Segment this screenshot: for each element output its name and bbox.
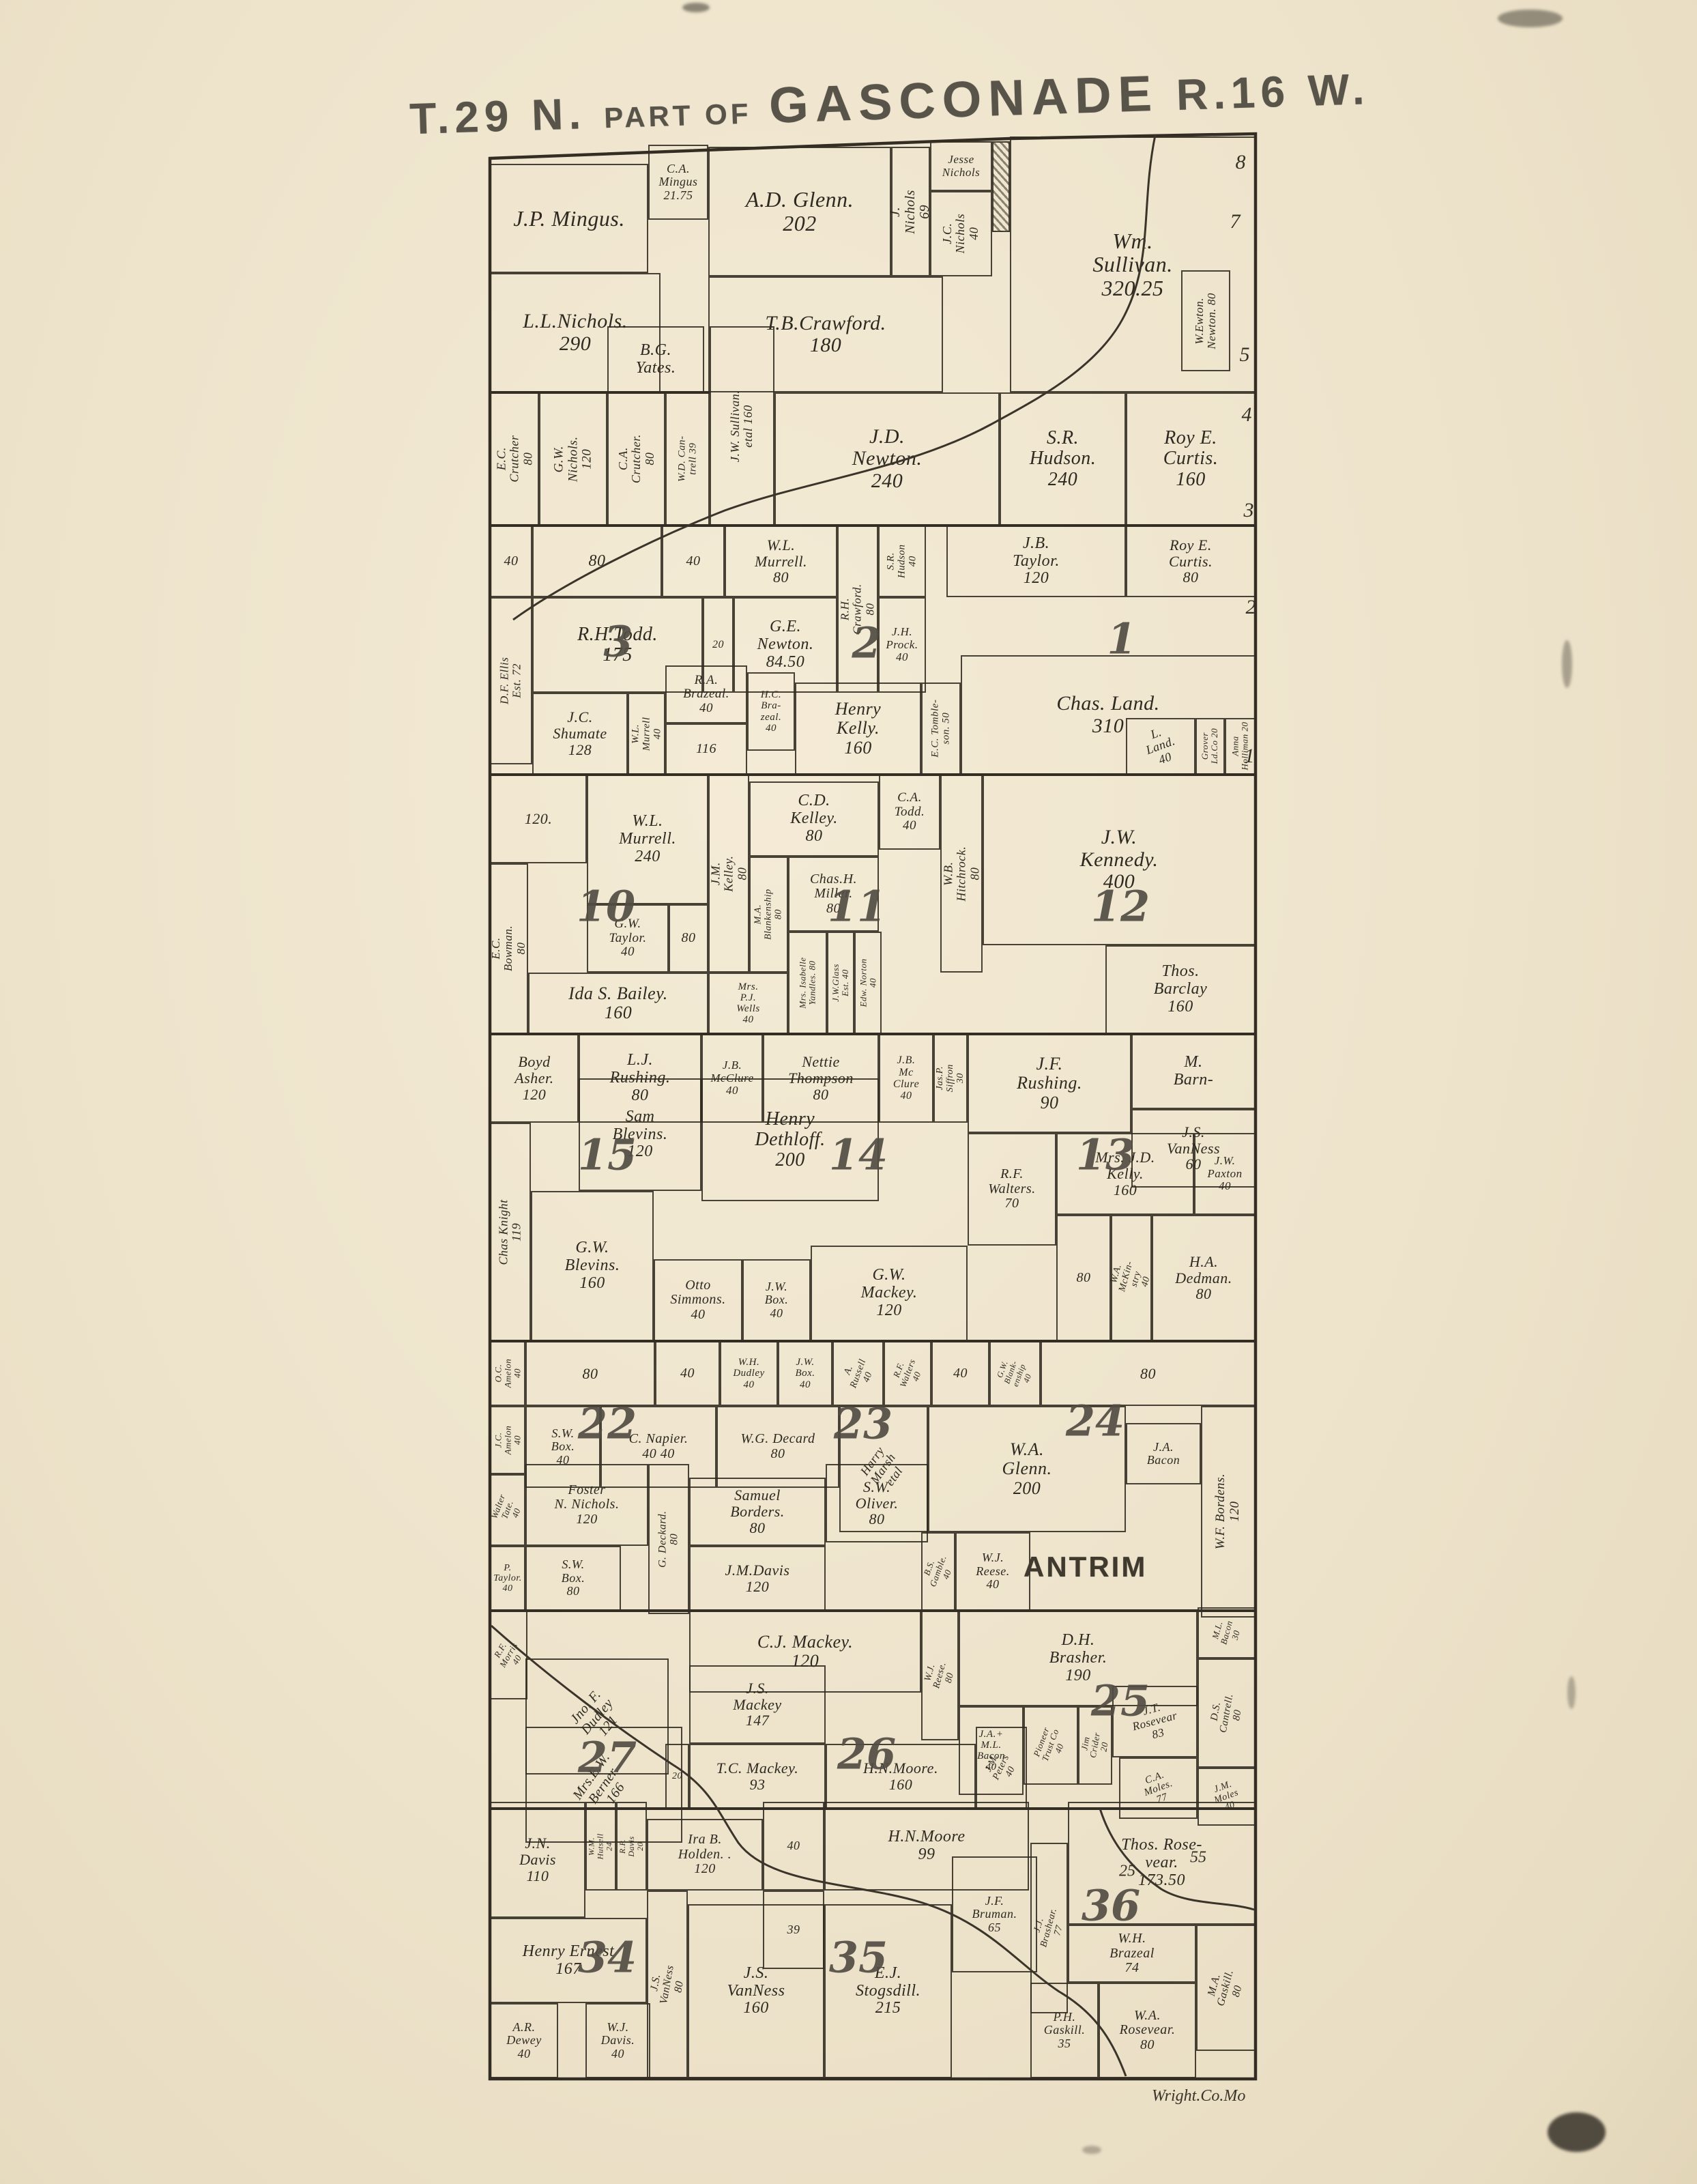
parcel: W.B.Hitchrock.80 <box>940 775 983 973</box>
parcel: J.C.Nichols40 <box>930 191 992 276</box>
parcel: M.Barn- <box>1131 1034 1256 1109</box>
parcel: S.R.Hudson.240 <box>1000 392 1126 526</box>
parcel-label: R.H.Crawford.80 <box>839 584 876 634</box>
parcel-label: PioneerTrust Co40 <box>1032 1725 1070 1766</box>
parcel-label: S.W.Box.80 <box>562 1558 585 1598</box>
parcel: D.F. EllisEst. 72 <box>490 597 532 764</box>
parcel: P.H.Gaskill.35 <box>1030 1983 1099 2078</box>
parcel-label: W.A.McKin-stry40 <box>1107 1258 1155 1299</box>
parcel-label: W.J.Reese.40 <box>976 1551 1009 1591</box>
parcel-label: R.A.Brazeal.40 <box>683 674 729 716</box>
parcel-label: J.C.Shumate128 <box>553 709 607 758</box>
parcel: Thos. Rose-vear.173.50 <box>1068 1802 1256 1925</box>
parcel-label: S.R.Hudson.240 <box>1030 428 1097 490</box>
parcel: C.A.Todd.40 <box>879 775 940 850</box>
parcel-label: R.H.Todd.175 <box>577 624 658 665</box>
parcel: R.F.Walters.70 <box>968 1133 1056 1246</box>
parcel: W.J.Reese.80 <box>921 1611 959 1740</box>
parcel: S.W.Oliver.80 <box>826 1464 928 1542</box>
parcel: W.L.Murrell.80 <box>725 526 837 597</box>
parcel: G.W.Blank-enship40 <box>989 1341 1041 1406</box>
parcel-label: W.L.Murrell.80 <box>755 537 807 586</box>
parcel: J.B.Taylor.120 <box>946 526 1126 597</box>
parcel-label: A.D. Glenn.202 <box>746 188 854 235</box>
part-of-label: PART OF <box>604 98 753 135</box>
parcel: J.W.Box.40 <box>778 1341 832 1406</box>
parcel-label: J.C.Amelon40 <box>493 1426 522 1455</box>
parcel: JimCrider20 <box>1078 1706 1112 1785</box>
parcel: W.H.Dudley40 <box>720 1341 778 1406</box>
parcel-label: J.T.Rosevear83 <box>1128 1697 1182 1746</box>
parcel: Henry Ernest167 <box>490 1918 647 2003</box>
parcel-label: C.A.Todd.40 <box>895 791 925 833</box>
parcel: J.S.VanNess160 <box>688 1904 824 2078</box>
parcel: HenryDethloff.200 <box>701 1078 879 1201</box>
parcel: J.S.Mackey147 <box>689 1665 826 1744</box>
parcel-label: 120. <box>525 811 553 827</box>
parcel-label: FosterN. Nichols.120 <box>555 1483 620 1527</box>
parcel-label: W.F. Bordens.120 <box>1214 1474 1242 1549</box>
parcel-label: J.M.Kelley.80 <box>709 856 749 892</box>
parcel: W.J.Reese.40 <box>955 1532 1030 1611</box>
parcel-label: BoydAsher.120 <box>514 1054 553 1102</box>
parcel-label: C. Napier.40 40 <box>629 1432 688 1461</box>
parcel-label: E.C. Tomble-son. 50 <box>930 700 952 758</box>
parcel: C.A.Crutcher.80 <box>607 392 665 526</box>
parcel-label: J.C.Nichols40 <box>941 214 981 254</box>
parcel-label: W.B.Hitchrock.80 <box>942 846 981 902</box>
paper-stain <box>1498 10 1563 27</box>
parcel: W.Ewton.Newton. 80 <box>1181 270 1230 371</box>
parcel: Roy E.Curtis.160 <box>1126 392 1256 526</box>
parcel-label: J.Nichols69 <box>888 190 933 234</box>
parcel-label: J.A.Bacon <box>1147 1441 1180 1467</box>
edge-section-number: 3 <box>1244 499 1254 522</box>
parcel: J.B.McClure40 <box>879 1034 933 1123</box>
parcel-label: W.G. Decard80 <box>740 1432 815 1461</box>
parcel-label: J.D.Newton.240 <box>852 426 923 492</box>
township-north-label: T.29 N. <box>409 88 587 144</box>
parcel: 120. <box>490 775 587 863</box>
parcel: A.D. Glenn.202 <box>708 147 891 276</box>
parcel-label: J.W.Box.40 <box>795 1357 815 1390</box>
parcel-label: E.C.Crutcher80 <box>495 435 534 483</box>
parcel: J.Nichols69 <box>891 147 930 276</box>
parcel: 80 <box>525 1341 655 1406</box>
parcel-label: 40 <box>686 554 701 569</box>
parcel-label: J.M.Peters40 <box>982 1749 1021 1786</box>
parcel-label: 80 <box>1077 1271 1091 1286</box>
parcel-label: J.W.Kennedy.400 <box>1080 827 1159 893</box>
parcel: J.W.Paxton40 <box>1194 1133 1256 1215</box>
road-distance-label: 55 <box>1190 1849 1206 1867</box>
parcel-label: J.S.VanNess80 <box>646 1962 688 2007</box>
parcel-label: W.M.Hutsell24 <box>588 1833 614 1859</box>
parcel-label: W.D. Can-trell 39 <box>676 436 698 483</box>
range-west-label: R.16 W. <box>1176 63 1371 120</box>
parcel: Edw. Norton40 <box>854 932 882 1034</box>
parcel-label: J.F.Rushing.90 <box>1017 1054 1082 1112</box>
parcel: J.M.Kelley.80 <box>708 775 749 973</box>
parcel-label: J.W. Sullivan.etal 160 <box>729 390 755 461</box>
parcel: 40 <box>655 1341 720 1406</box>
parcel: G.W.Taylor.40 <box>587 904 669 973</box>
parcel: J.A.Bacon <box>1126 1423 1201 1484</box>
parcel-label: B.G.Yates. <box>636 342 676 377</box>
parcel-label: J.P. Mingus. <box>513 207 625 231</box>
parcel: J.M.Peters40 <box>976 1727 1027 1809</box>
parcel: H.N.Moore.160 <box>826 1744 976 1809</box>
parcel: J.F.Bruman.65 <box>952 1856 1037 1972</box>
map-title: T.29 N. PART OF GASCONADE R.16 W. <box>409 60 1290 145</box>
parcel: W.G. Decard80 <box>716 1406 839 1488</box>
parcel: GroverLd.Co 20 <box>1195 718 1225 775</box>
parcel: W.A.Glenn.200 <box>928 1406 1126 1532</box>
parcel: J.S.VanNess80 <box>647 1891 688 2078</box>
parcel: A.Russell40 <box>832 1341 884 1406</box>
parcel-label: J.S.VanNess160 <box>727 1965 785 2018</box>
publisher-stamp: Wright.Co.Mo <box>1152 2087 1245 2106</box>
parcel: J.T.Rosevear83 <box>1112 1686 1198 1757</box>
parcel-label: JesseNichols <box>942 154 980 179</box>
parcel-label: J.J.Brashear.77 <box>1029 1905 1069 1951</box>
parcel-label: C.A.Crutcher.80 <box>616 435 656 484</box>
parcel: PioneerTrust Co40 <box>1024 1706 1078 1785</box>
parcel: W.L.Murrell.240 <box>587 775 708 904</box>
paper-stain <box>1548 2112 1606 2152</box>
parcel: D.S.Cantrell.80 <box>1198 1658 1256 1768</box>
parcel-label: J.H.Prock.40 <box>886 626 918 663</box>
parcel-label: H.C.Bra-zeal.40 <box>761 689 781 734</box>
parcel-label: WalterTate.40 <box>490 1493 525 1527</box>
parcel: R.A.Brazeal.40 <box>665 665 747 723</box>
parcel-label: G. Deckard.80 <box>657 1510 681 1568</box>
parcel: P.Taylor.40 <box>490 1546 525 1611</box>
parcel: 80 <box>1056 1215 1111 1341</box>
parcel-label: 40 <box>680 1366 695 1381</box>
parcel-label: B.S.Gamble.40 <box>919 1551 957 1592</box>
parcel: FosterN. Nichols.120 <box>525 1464 648 1546</box>
parcel-label: W.J.Davis.40 <box>601 2021 635 2060</box>
parcel: B.S.Gamble.40 <box>921 1532 955 1611</box>
parcel: J.D.Newton.240 <box>774 392 1000 526</box>
parcel: J.W. Sullivan.etal 160 <box>710 326 774 526</box>
parcel: 20 <box>665 1744 689 1809</box>
parcel: Chas Knight119 <box>490 1123 531 1341</box>
parcel-label: C.D.Kelley.80 <box>790 792 837 846</box>
parcel: G.W.Nichols.120 <box>539 392 607 526</box>
parcel-label: GroverLd.Co 20 <box>1200 728 1219 764</box>
parcel-label: J.B.Taylor.120 <box>1013 535 1060 588</box>
parcel-label: G.W.Blank-enship40 <box>994 1356 1036 1391</box>
parcel-label: SamuelBorders.80 <box>730 1487 785 1536</box>
parcel: G.W.Mackey.120 <box>811 1246 968 1341</box>
parcel: JesseNichols <box>930 141 992 191</box>
edge-section-number: 4 <box>1242 403 1252 427</box>
paper-stain <box>682 3 710 12</box>
paper-stain <box>1082 2146 1101 2154</box>
parcel-label: H.A.Dedman.80 <box>1175 1254 1232 1302</box>
parcel-label: H.N.Moore.160 <box>863 1760 938 1793</box>
parcel-label: W.L.Murrell40 <box>630 717 663 751</box>
parcel: J.N.Davis110 <box>490 1802 585 1918</box>
parcel-label: J.S.Mackey147 <box>733 1680 781 1729</box>
parcel: H.C.Bra-zeal.40 <box>747 672 795 751</box>
parcel: 40 <box>662 526 725 597</box>
parcel-label: SamBlevins.120 <box>613 1108 668 1162</box>
parcel: Jas.P.Siffron30 <box>933 1034 968 1123</box>
parcel: J.M.Davis120 <box>689 1546 826 1611</box>
parcel-label: G.W.Nichols.120 <box>552 436 594 482</box>
parcel: W.H.Brazeal74 <box>1068 1925 1196 1983</box>
parcel-label: JimCrider20 <box>1079 1730 1112 1760</box>
parcel: J.W.Box.40 <box>742 1259 811 1341</box>
parcel-label: J.N.Davis110 <box>519 1835 556 1884</box>
parcel-label: D.F. EllisEst. 72 <box>499 657 524 704</box>
edge-section-number: 1 <box>1245 745 1255 768</box>
parcel: W.F. Bordens.120 <box>1201 1406 1256 1618</box>
parcel: E.J.Stogsdill.215 <box>824 1904 952 2078</box>
parcel-label: E.J.Stogsdill.215 <box>856 1965 920 2018</box>
parcel: W.J.Davis.40 <box>585 2003 650 2078</box>
parcel-label: W.Ewton.Newton. 80 <box>1193 293 1219 349</box>
edge-section-number: 7 <box>1230 210 1241 233</box>
parcel: S.R.Hudson40 <box>878 526 926 597</box>
parcel-label: 20 <box>672 1771 682 1781</box>
parcel-label: J.W.GlassEst. 40 <box>831 964 850 1002</box>
parcel: Chas.H.Miller.80 <box>788 857 879 932</box>
parcel: HenryKelly.160 <box>795 682 921 775</box>
parcel-label: G.W.Taylor.40 <box>609 917 646 960</box>
parcel-label: Ida S. Bailey.160 <box>568 984 668 1022</box>
parcel: J.W.GlassEst. 40 <box>827 932 854 1034</box>
parcel: J.W.Kennedy.400 <box>983 775 1256 945</box>
edge-section-number: 8 <box>1236 151 1246 174</box>
parcel: R.F.Morris40 <box>490 1611 527 1699</box>
parcel-label: Chas Knight119 <box>497 1199 524 1265</box>
parcel-label: S.R.Hudson40 <box>886 545 919 579</box>
parcel: M.A.Blankenship80 <box>749 857 788 973</box>
parcel: R.F.Walters40 <box>884 1341 931 1406</box>
parcel-label: D.S.Cantrell.80 <box>1207 1691 1247 1735</box>
parcel-label: O.C.Amelon40 <box>493 1359 522 1388</box>
parcel-label: Mrs. IsabelleYandles. 80 <box>798 957 817 1008</box>
parcel-label: Mrs.P.J.Wells40 <box>736 981 759 1026</box>
parcel-label: Thos.Barclay160 <box>1154 963 1208 1016</box>
parcel-label: Roy E.Curtis.160 <box>1163 428 1219 490</box>
parcel-label: G.W.Blevins.160 <box>565 1239 620 1293</box>
parcel: Ira B.Holden. .120 <box>647 1819 763 1891</box>
parcel: J.P. Mingus. <box>490 164 648 273</box>
parcel-label: Wm.Sullivan.320.25 <box>1092 229 1172 300</box>
parcel: W.A.McKin-stry40 <box>1111 1215 1152 1341</box>
parcel-label: 40 <box>953 1366 968 1381</box>
parcel: 40 <box>931 1341 989 1406</box>
parcel: J.H.Prock.40 <box>878 597 926 693</box>
parcel-label: Ira B.Holden. .120 <box>678 1833 731 1877</box>
parcel: 116 <box>665 723 747 775</box>
edge-section-number: 2 <box>1246 596 1256 619</box>
parcel-label: A.Russell40 <box>839 1354 878 1393</box>
parcel-label: W.H.Brazeal74 <box>1109 1931 1155 1976</box>
parcel: E.C.Bowman.80 <box>490 863 528 1034</box>
parcel: SamBlevins.120 <box>579 1078 701 1191</box>
parcel: R.P.Davis20 <box>616 1802 647 1891</box>
hatched-parcel <box>992 141 1010 232</box>
parcel: BoydAsher.120 <box>490 1034 579 1123</box>
parcel-label: J.M.Davis120 <box>725 1562 790 1595</box>
parcel-label: E.C.Bowman.80 <box>490 925 527 971</box>
parcel: L.Land.40 <box>1126 718 1195 775</box>
parcel: W.M.Hutsell24 <box>585 1802 616 1891</box>
parcel: C.D.Kelley.80 <box>749 781 879 857</box>
parcel: R.H.Crawford.80 <box>837 526 878 693</box>
parcel: Roy E.Curtis.80 <box>1126 526 1256 597</box>
parcel: J.C.Shumate128 <box>532 693 628 775</box>
parcel-label: 40 <box>504 554 519 569</box>
road-distance-label: 25 <box>1119 1863 1135 1881</box>
parcel-label: G.W.Mackey.120 <box>861 1267 918 1320</box>
paper-stain <box>1562 640 1572 688</box>
parcel: A.R.Dewey40 <box>490 2003 558 2078</box>
parcel: Mrs. IsabelleYandles. 80 <box>788 932 827 1034</box>
parcel-label: HenryKelly.160 <box>835 700 881 757</box>
parcel-label: Henry Ernest167 <box>523 1943 615 1979</box>
parcel-label: 80 <box>589 553 606 571</box>
parcel: O.C.Amelon40 <box>490 1341 525 1406</box>
parcel: Thos.Barclay160 <box>1105 945 1256 1034</box>
parcel-label: M.Barn- <box>1174 1054 1214 1089</box>
parcel: E.C. Tomble-son. 50 <box>921 682 961 775</box>
parcel: B.G.Yates. <box>607 326 704 392</box>
parcel: Mrs.P.J.Wells40 <box>708 973 788 1034</box>
parcel: H.A.Dedman.80 <box>1152 1215 1256 1341</box>
parcel: S.W.Box.80 <box>525 1546 621 1611</box>
parcel-label: 116 <box>696 742 716 757</box>
parcel: W.L.Murrell40 <box>628 693 665 775</box>
parcel: E.C.Crutcher80 <box>490 392 539 526</box>
parcel-label: Edw. Norton40 <box>858 959 877 1007</box>
parcel: 40 <box>490 526 532 597</box>
parcel-label: C.A.Mingus21.75 <box>659 162 698 202</box>
parcel: 80 <box>532 526 662 597</box>
parcel: Ida S. Bailey.160 <box>528 973 708 1034</box>
parcel: J.C.Amelon40 <box>490 1406 525 1474</box>
parcel-label: J.B.McClure40 <box>893 1054 919 1102</box>
paper-stain <box>1567 1676 1576 1709</box>
parcel-label: J.W.Box.40 <box>765 1280 788 1320</box>
parcel: G.W.Blevins.160 <box>531 1191 654 1341</box>
parcel-label: L.Land.40 <box>1140 723 1181 771</box>
parcel-label: OttoSimmons.40 <box>670 1278 725 1323</box>
parcel-label: W.H.Dudley40 <box>733 1357 764 1390</box>
parcel-label: W.A.Glenn.200 <box>1002 1440 1051 1497</box>
parcel-label: W.J.Reese.80 <box>922 1658 959 1693</box>
parcel-label: Jas.P.Siffron30 <box>935 1064 966 1092</box>
parcel-label: 20 <box>712 639 724 650</box>
parcel-label: 80 <box>583 1366 598 1382</box>
parcel: W.A.Rosevear.80 <box>1099 1983 1196 2078</box>
parcel-label: S.W.Box.40 <box>551 1427 575 1467</box>
parcel-label: HenryDethloff.200 <box>755 1109 825 1171</box>
parcel: T.C. Mackey.93 <box>689 1744 826 1809</box>
parcel: SamuelBorders.80 <box>689 1478 826 1546</box>
parcel: C.A.Mingus21.75 <box>648 145 708 220</box>
parcel-label: Mrs. J.D.Kelly.160 <box>1095 1149 1155 1198</box>
parcel-label: M.A.Gaskill.80 <box>1204 1966 1247 2011</box>
edge-section-number: 5 <box>1240 343 1250 367</box>
parcel: M.A.Gaskill.80 <box>1196 1925 1256 2051</box>
plat-map-page: T.29 N. PART OF GASCONADE R.16 W. J.P. M… <box>0 0 1697 2184</box>
parcel: 80 <box>1041 1341 1256 1406</box>
parcel-label: R.F.Walters40 <box>889 1355 926 1392</box>
parcel-label: A.R.Dewey40 <box>506 2021 541 2060</box>
parcel-label: P.Taylor.40 <box>493 1563 522 1594</box>
parcel-label: M.A.Blankenship80 <box>753 889 784 940</box>
town-label-antrim: ANTRIM <box>1024 1551 1147 1583</box>
parcel: 80 <box>669 904 708 973</box>
parcel: G. Deckard.80 <box>648 1464 689 1614</box>
parcel-label: Roy E.Curtis.80 <box>1169 537 1213 586</box>
parcel-label: 80 <box>1140 1366 1156 1382</box>
parcel-label: R.F.Morris40 <box>489 1637 527 1674</box>
parcel-label: 40 <box>787 1839 800 1852</box>
parcel: OttoSimmons.40 <box>654 1259 742 1341</box>
parcel-label: W.A.Rosevear.80 <box>1120 2009 1176 2053</box>
parcel-label: J.W.Paxton40 <box>1207 1155 1242 1192</box>
parcel-label: R.F.Walters.70 <box>988 1167 1035 1211</box>
parcel-label: Chas.H.Miller.80 <box>810 872 857 917</box>
township-name-label: GASCONADE <box>768 64 1159 134</box>
parcel-label: P.H.Gaskill.35 <box>1044 2011 1086 2050</box>
parcel: W.D. Can-trell 39 <box>665 392 710 526</box>
parcel-label: T.C. Mackey.93 <box>716 1760 798 1793</box>
parcel: J.F.Rushing.90 <box>968 1034 1131 1133</box>
parcel-label: M.L.Bacon30 <box>1210 1618 1244 1648</box>
parcel-label: W.L.Murrell.240 <box>619 813 676 866</box>
parcel-label: S.W.Oliver.80 <box>856 1479 899 1527</box>
parcel-label: T.B.Crawford.180 <box>765 313 886 357</box>
parcel: Mrs. J.D.Kelly.160 <box>1056 1133 1194 1215</box>
parcel: WalterTate.40 <box>490 1474 525 1546</box>
parcel-label: D.H.Brasher.190 <box>1049 1632 1107 1685</box>
parcel-label: R.P.Davis20 <box>618 1836 645 1857</box>
parcel-label: G.E.Newton.84.50 <box>757 618 814 672</box>
parcel-label: J.F.Bruman.65 <box>972 1895 1017 1934</box>
parcel-label: 80 <box>682 931 696 946</box>
parcel: 40 <box>763 1802 824 1891</box>
parcel: M.L.Bacon30 <box>1198 1607 1256 1658</box>
